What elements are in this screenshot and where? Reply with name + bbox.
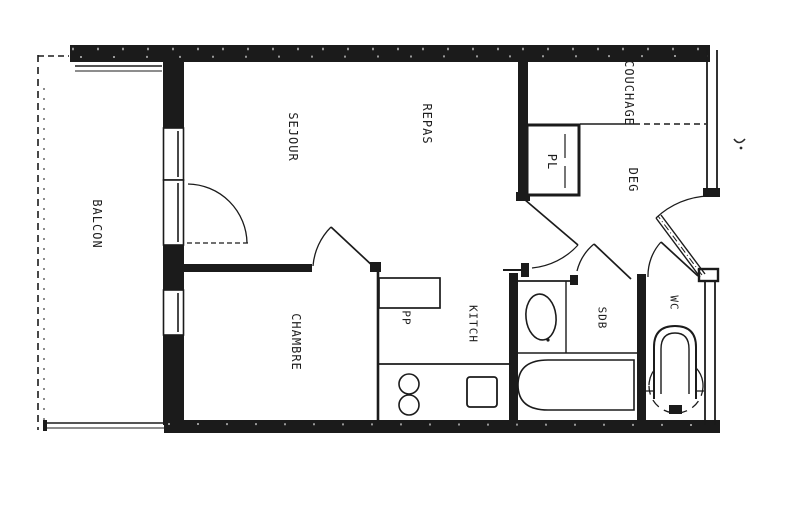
- chambre-door: [313, 227, 376, 269]
- floorplan-drawing: [0, 0, 800, 532]
- deg-door-arc: [532, 245, 578, 268]
- room-label-pl: PL: [545, 154, 559, 170]
- kitchen-sink: [467, 377, 497, 407]
- room-label-wc: WC: [668, 295, 681, 310]
- interior-walls: [183, 60, 646, 420]
- room-label-sdb: SDB: [596, 307, 609, 330]
- balcony-door-arc: [188, 184, 247, 243]
- kitchen-fixtures: [378, 278, 511, 415]
- room-label-chambre: CHAMBRE: [289, 313, 303, 371]
- pass-through-pp: [379, 278, 440, 308]
- entry-door-leaf-inner: [661, 215, 705, 274]
- window-upper: [164, 128, 184, 180]
- right-window-walls: [699, 50, 718, 425]
- washbasin: [524, 293, 559, 342]
- wall-bottom: [164, 420, 720, 433]
- room-label-pp: PP: [400, 310, 413, 325]
- burner-2: [399, 395, 419, 415]
- stray-mark-squiggle: [734, 139, 745, 143]
- burner-1: [399, 374, 419, 394]
- window-lower: [164, 290, 184, 335]
- balcony-door: [187, 184, 251, 243]
- jamb-tick-sdb: [570, 275, 578, 285]
- wc-door-leaf: [661, 242, 698, 276]
- room-label-couchage: COUCHAGE: [622, 60, 636, 126]
- sdb-door: [577, 244, 631, 279]
- deg-door: [524, 199, 578, 268]
- bathtub: [518, 360, 634, 410]
- floorplan-page: BALCON SEJOUR REPAS COUCHAGE PL DEG CHAM…: [0, 0, 800, 532]
- room-label-sejour: SEJOUR: [286, 112, 300, 161]
- deg-door-leaf: [524, 199, 578, 245]
- stray-mark: [734, 139, 745, 149]
- hinge-tick-chambre-door: [370, 262, 381, 272]
- balcony-bottom-tick: [43, 420, 47, 431]
- entry-door: [656, 196, 709, 277]
- room-label-balcon: BALCON: [90, 199, 104, 248]
- toilet-base: [669, 405, 682, 414]
- wall-kitch-sdb: [509, 273, 518, 420]
- balcony-door-glazing: [164, 180, 184, 245]
- wall-sejour-chambre: [183, 264, 312, 272]
- entry-door-arc: [656, 196, 709, 218]
- sdb-door-leaf: [594, 244, 631, 279]
- wc-door-arc: [648, 242, 661, 277]
- sdb-door-arc: [577, 244, 594, 271]
- sdb-fixtures: [518, 281, 637, 410]
- wall-left-seg3: [163, 335, 184, 425]
- washbasin-drain: [546, 338, 549, 341]
- room-label-repas: REPAS: [420, 103, 434, 144]
- chambre-door-leaf: [331, 227, 376, 269]
- wall-left-seg1: [163, 58, 184, 128]
- wall-sdb-wc: [637, 274, 646, 420]
- chambre-door-arc: [313, 227, 331, 266]
- wc-fixtures: [646, 326, 704, 414]
- left-wall-windows: [164, 128, 184, 335]
- wall-left-seg2: [163, 245, 184, 290]
- room-label-deg: DEG: [626, 168, 640, 193]
- stray-mark-dot: [740, 147, 743, 150]
- entry-door-leaf-outer: [656, 218, 700, 277]
- room-label-kitch: KITCH: [467, 305, 480, 343]
